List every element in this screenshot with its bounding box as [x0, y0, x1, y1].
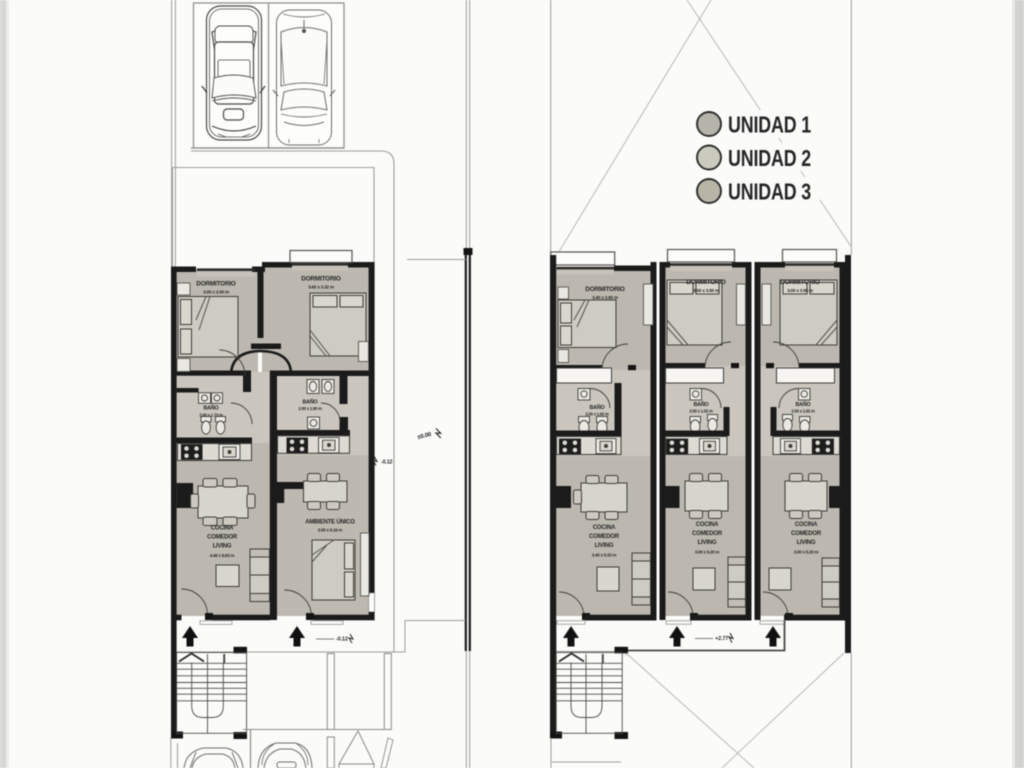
svg-text:2.00 x 1.52 m: 2.00 x 1.52 m — [689, 409, 713, 414]
svg-text:LIVING: LIVING — [797, 540, 816, 546]
svg-text:LIVING: LIVING — [595, 543, 614, 549]
svg-text:2.00 x 1.52 m: 2.00 x 1.52 m — [791, 409, 815, 414]
svg-text:DORMITORIO: DORMITORIO — [585, 286, 625, 293]
svg-text:LIVING: LIVING — [213, 544, 232, 550]
svg-text:3.40 x 5.33 m: 3.40 x 5.33 m — [592, 553, 617, 558]
svg-text:BAÑO: BAÑO — [203, 405, 218, 412]
svg-text:-0.12: -0.12 — [336, 637, 348, 643]
svg-text:DORMITORIO: DORMITORIO — [686, 279, 726, 286]
svg-text:+2.77: +2.77 — [715, 636, 728, 642]
svg-text:BAÑO: BAÑO — [302, 399, 317, 406]
svg-text:3.00 x 6.16 m: 3.00 x 6.16 m — [318, 528, 343, 533]
svg-text:3.00 x 5.20 m: 3.00 x 5.20 m — [695, 550, 720, 555]
svg-text:COMEDOR: COMEDOR — [207, 535, 238, 541]
svg-text:2.00 x 1.73 m: 2.00 x 1.73 m — [199, 413, 223, 418]
svg-text:AMBIENTE ÚNICO: AMBIENTE ÚNICO — [305, 519, 355, 526]
svg-text:DORMITORIO: DORMITORIO — [196, 281, 236, 288]
svg-text:-0.12: -0.12 — [381, 460, 392, 466]
svg-text:COCINA: COCINA — [211, 526, 234, 532]
svg-text:BAÑO: BAÑO — [693, 401, 708, 408]
svg-text:LIVING: LIVING — [698, 540, 717, 546]
svg-text:COCINA: COCINA — [593, 525, 616, 531]
svg-text:3.00 x 3.50 m: 3.00 x 3.50 m — [693, 288, 719, 293]
svg-text:COCINA: COCINA — [696, 522, 719, 528]
svg-text:COMEDOR: COMEDOR — [589, 534, 620, 540]
svg-text:3.40 x 3.60 m: 3.40 x 3.60 m — [592, 295, 618, 300]
svg-text:DORMITORIO: DORMITORIO — [301, 276, 341, 283]
svg-text:UNIDAD 1: UNIDAD 1 — [728, 112, 811, 138]
svg-text:3.60 x 3.32 m: 3.60 x 3.32 m — [308, 285, 334, 290]
svg-text:3.05 x 3.00 m: 3.05 x 3.00 m — [203, 290, 229, 295]
svg-text:2.00 x 1.90 m: 2.00 x 1.90 m — [298, 406, 322, 411]
svg-text:2.00 x 1.62 m: 2.00 x 1.62 m — [585, 412, 609, 417]
svg-text:COMEDOR: COMEDOR — [791, 531, 822, 537]
svg-text:DORMITORIO: DORMITORIO — [780, 279, 820, 286]
svg-text:3.00 x 5.20 m: 3.00 x 5.20 m — [794, 550, 819, 555]
svg-text:COMEDOR: COMEDOR — [692, 531, 723, 537]
svg-text:UNIDAD 3: UNIDAD 3 — [728, 179, 811, 205]
svg-text:UNIDAD 2: UNIDAD 2 — [728, 145, 811, 171]
svg-text:BAÑO: BAÑO — [795, 401, 810, 408]
svg-text:4.46 x 6.83 m: 4.46 x 6.83 m — [210, 553, 235, 558]
svg-text:COCINA: COCINA — [795, 522, 818, 528]
svg-text:BAÑO: BAÑO — [589, 404, 604, 411]
svg-text:3.00 x 3.50 m: 3.00 x 3.50 m — [787, 288, 813, 293]
